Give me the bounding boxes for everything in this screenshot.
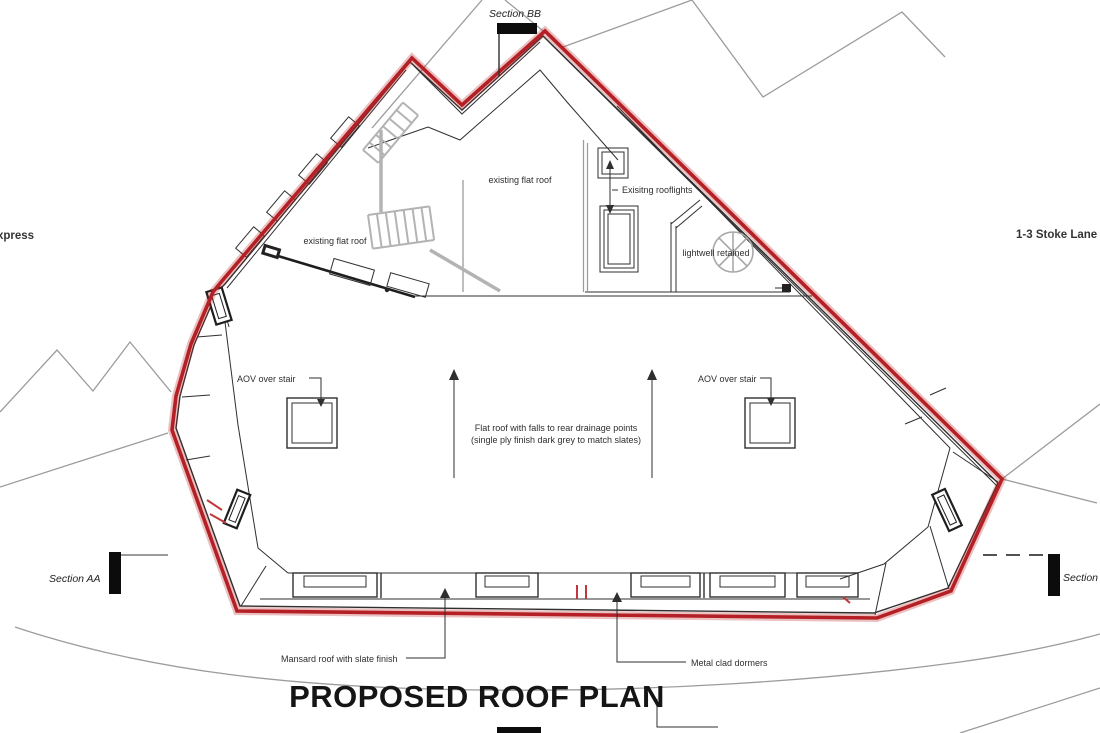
section-aa-marker-right — [1048, 554, 1060, 596]
section-aa-left-label: Section AA — [49, 573, 101, 585]
rooflight-upper — [598, 148, 628, 178]
flat-roof-note-line2: (single ply finish dark grey to match sl… — [471, 435, 641, 445]
red-tick-marks — [207, 500, 850, 603]
labels: Section BB xpress 1-3 Stoke Lane existin… — [0, 8, 1100, 714]
section-aa-right-label: Section AA — [1063, 572, 1100, 584]
proposed-roof-plan-page: { "title": "PROPOSED ROOF PLAN", "colors… — [0, 0, 1100, 733]
existing-rooflights-label: Exisitng rooflights — [622, 185, 693, 195]
section-bb-marker-bottom — [497, 727, 541, 733]
existing-flat-roof-left-label: existing flat roof — [303, 236, 367, 246]
right-street-label: 1-3 Stoke Lane — [1016, 229, 1097, 241]
aov-right-box — [745, 398, 795, 448]
existing-flat-roof-center-label: existing flat roof — [488, 175, 552, 185]
dormers — [293, 573, 858, 598]
dormers-label: Metal clad dormers — [691, 658, 768, 668]
section-bb-marker — [497, 23, 537, 34]
aov-left-label: AOV over stair — [237, 374, 296, 384]
aov-left-box — [287, 398, 337, 448]
flat-roof-note-line1: Flat roof with falls to rear drainage po… — [475, 423, 638, 433]
section-aa-marker-left — [109, 552, 121, 594]
aov-right-label: AOV over stair — [698, 374, 757, 384]
chimney-block — [261, 244, 281, 260]
site-context-lines — [0, 0, 1100, 733]
building-outline — [176, 36, 998, 615]
stair-hatch-lower — [368, 206, 434, 248]
left-street-label: xpress — [0, 230, 34, 242]
roof-plan-drawing: Section BB xpress 1-3 Stoke Lane existin… — [0, 0, 1100, 733]
lightwell-label: lightwell retained — [682, 248, 749, 258]
mansard-label: Mansard roof with slate finish — [281, 654, 398, 664]
drawing-title: PROPOSED ROOF PLAN — [289, 679, 665, 714]
rooflight-lower — [600, 206, 638, 272]
section-bb-label: Section BB — [489, 8, 541, 20]
leader-lines — [309, 160, 775, 662]
red-outline — [172, 31, 1002, 618]
